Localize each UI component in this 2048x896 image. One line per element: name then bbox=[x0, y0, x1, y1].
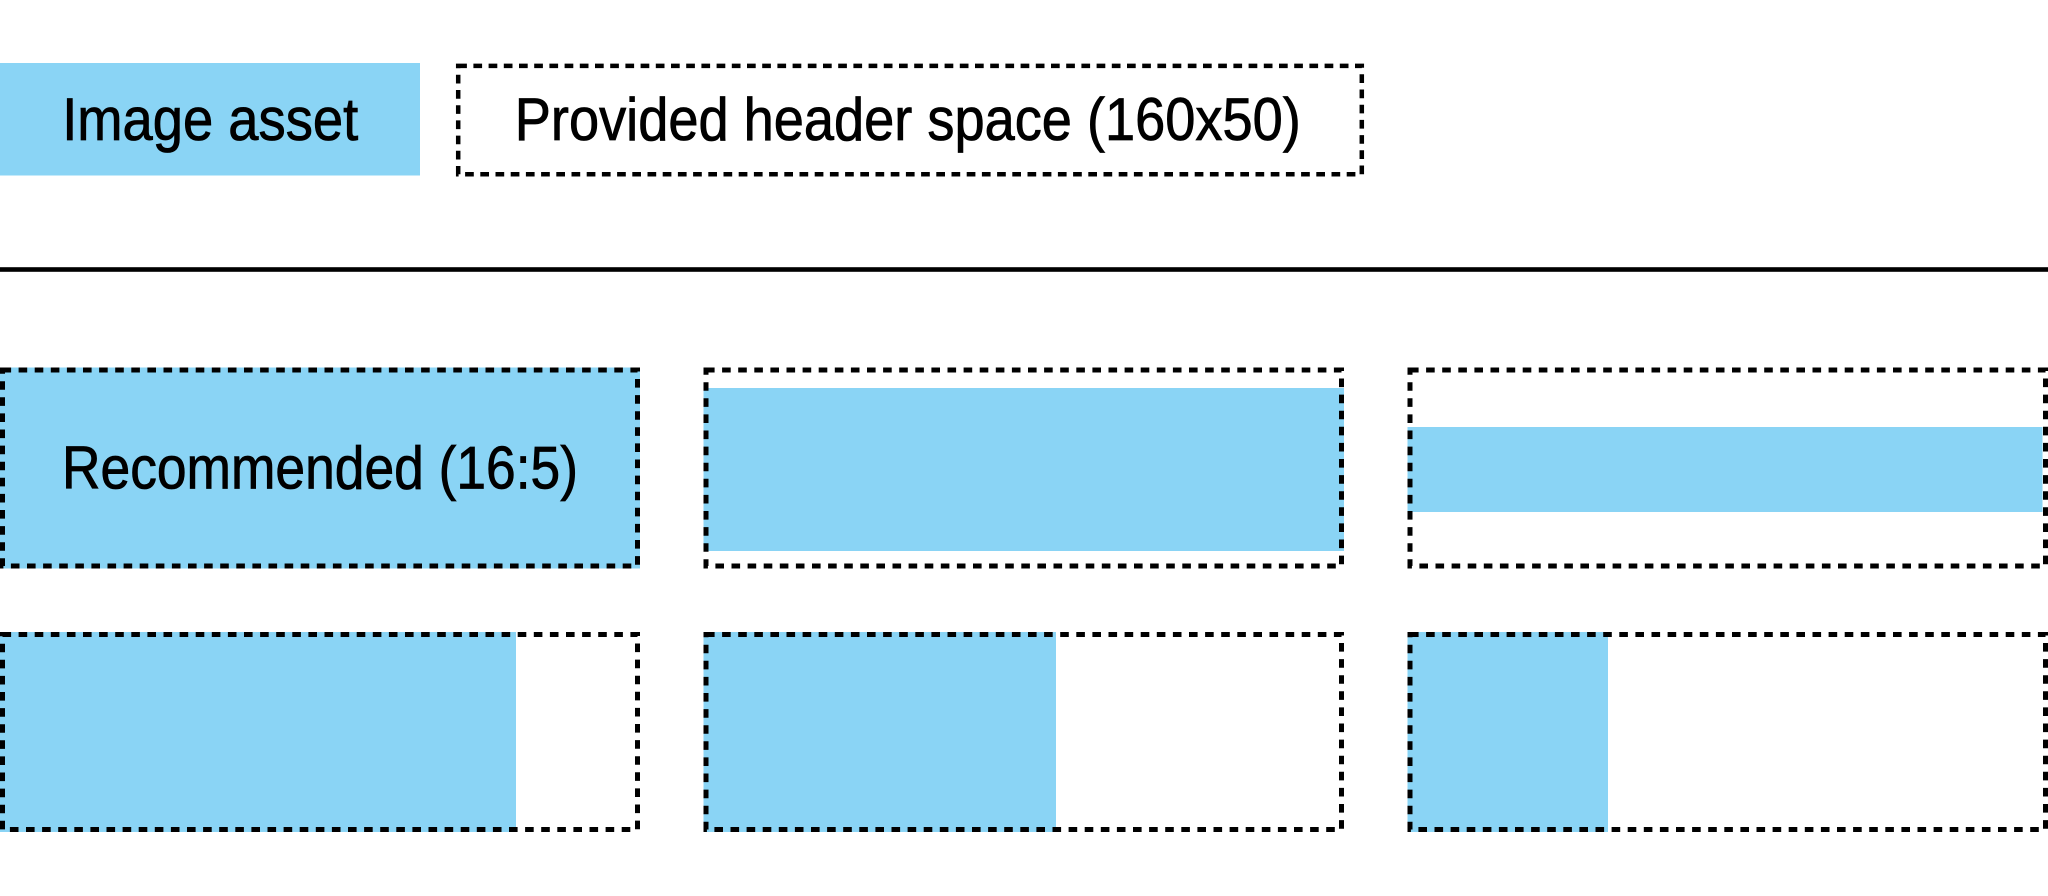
svg-text:Image asset: Image asset bbox=[62, 86, 358, 153]
svg-text:Provided header space (160x50): Provided header space (160x50) bbox=[515, 86, 1301, 153]
svg-text:Recommended (16:5): Recommended (16:5) bbox=[62, 434, 578, 501]
